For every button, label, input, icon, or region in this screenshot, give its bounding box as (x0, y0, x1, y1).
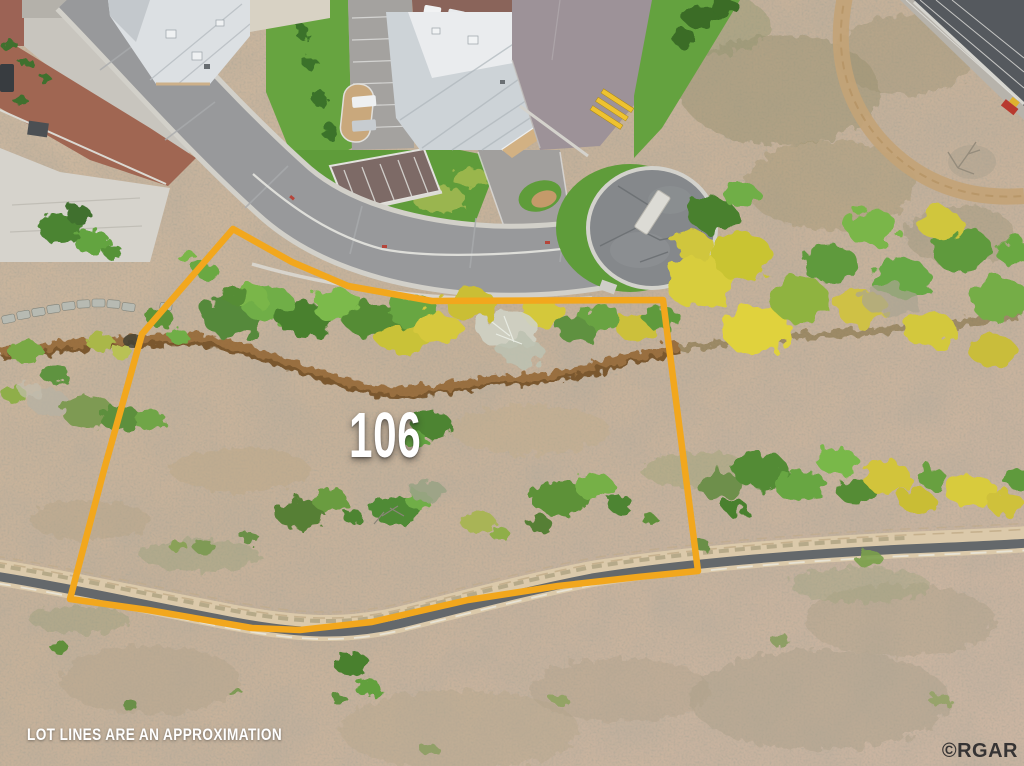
landscape-island (339, 83, 375, 144)
lot-lines-disclaimer: LOT LINES ARE AN APPROXIMATION (27, 725, 282, 744)
parked-car (0, 64, 14, 92)
listing-photo: 106 LOT LINES ARE AN APPROXIMATION ©RGAR (0, 0, 1024, 766)
photographer-watermark: ©RGAR (942, 740, 1018, 763)
parked-car (352, 119, 377, 132)
parked-car (352, 95, 377, 108)
dumpster (27, 121, 49, 138)
lot-number-label: 106 (349, 403, 421, 467)
aerial-photo (0, 0, 1024, 766)
